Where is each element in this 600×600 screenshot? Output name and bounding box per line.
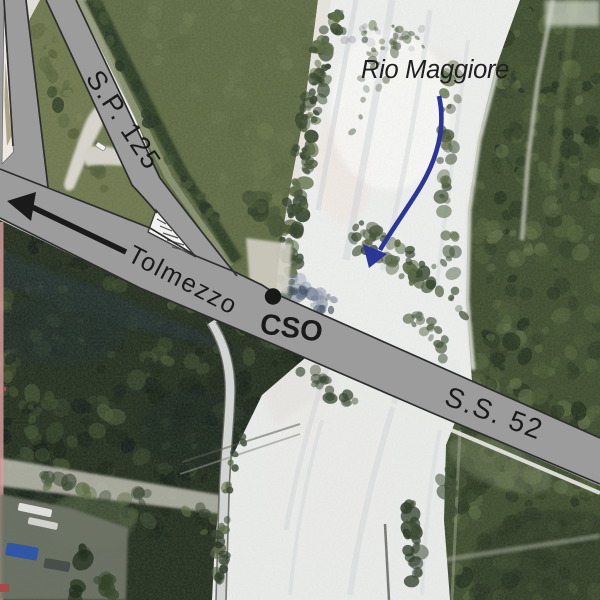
svg-text:Rio Maggiore: Rio Maggiore [361, 56, 509, 84]
